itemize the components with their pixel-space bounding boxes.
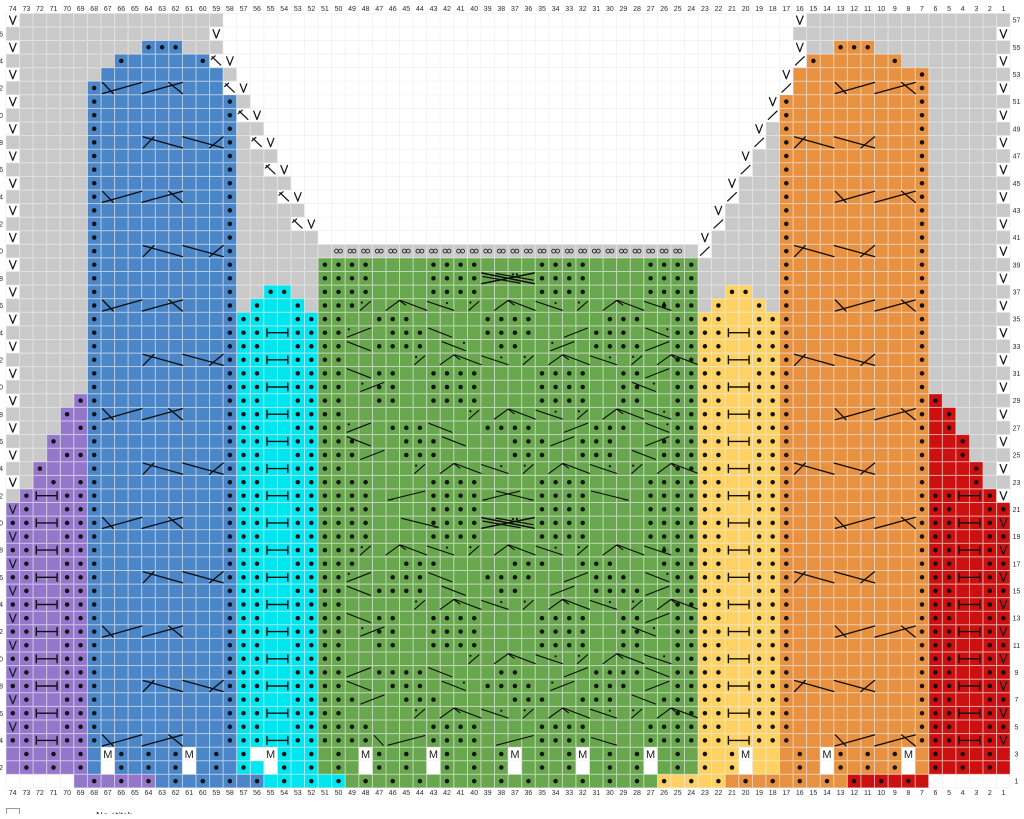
- svg-text:15: 15: [810, 6, 818, 13]
- svg-text:46: 46: [389, 790, 397, 797]
- svg-text:4: 4: [961, 790, 965, 797]
- svg-text:37: 37: [1013, 290, 1021, 297]
- svg-text:23: 23: [701, 790, 709, 797]
- svg-text:27: 27: [647, 6, 655, 13]
- svg-text:2: 2: [988, 6, 992, 13]
- svg-text:53: 53: [294, 6, 302, 13]
- svg-text:68: 68: [90, 790, 98, 797]
- svg-text:8: 8: [0, 684, 3, 691]
- svg-text:51: 51: [321, 790, 329, 797]
- svg-text:28: 28: [633, 790, 641, 797]
- svg-text:48: 48: [0, 140, 3, 147]
- svg-text:No stitch: No stitch: [96, 811, 133, 815]
- svg-text:44: 44: [0, 194, 3, 201]
- svg-text:69: 69: [77, 6, 85, 13]
- svg-text:12: 12: [850, 790, 858, 797]
- svg-text:1: 1: [1015, 779, 1019, 786]
- svg-text:12: 12: [850, 6, 858, 13]
- svg-text:26: 26: [0, 439, 3, 446]
- svg-text:17: 17: [1013, 561, 1021, 568]
- svg-text:9: 9: [1015, 670, 1019, 677]
- svg-text:15: 15: [810, 790, 818, 797]
- svg-text:25: 25: [674, 790, 682, 797]
- svg-text:6: 6: [0, 711, 3, 718]
- svg-text:M: M: [361, 749, 370, 761]
- svg-text:33: 33: [565, 6, 573, 13]
- svg-text:47: 47: [1013, 154, 1021, 161]
- svg-text:41: 41: [1013, 235, 1021, 242]
- svg-text:21: 21: [728, 6, 736, 13]
- svg-text:40: 40: [470, 790, 478, 797]
- svg-text:62: 62: [172, 6, 180, 13]
- svg-text:22: 22: [715, 790, 723, 797]
- svg-text:51: 51: [1013, 99, 1021, 106]
- svg-text:32: 32: [579, 790, 587, 797]
- svg-text:45: 45: [402, 790, 410, 797]
- svg-text:71: 71: [50, 790, 58, 797]
- svg-text:58: 58: [226, 790, 234, 797]
- svg-text:34: 34: [552, 6, 560, 13]
- svg-text:55: 55: [267, 790, 275, 797]
- svg-text:M: M: [741, 749, 750, 761]
- svg-text:50: 50: [335, 6, 343, 13]
- svg-text:56: 56: [0, 31, 3, 38]
- svg-text:10: 10: [877, 6, 885, 13]
- svg-text:M: M: [266, 749, 275, 761]
- svg-text:30: 30: [0, 385, 3, 392]
- svg-text:63: 63: [158, 790, 166, 797]
- svg-text:32: 32: [579, 6, 587, 13]
- svg-text:65: 65: [131, 6, 139, 13]
- svg-text:56: 56: [253, 790, 261, 797]
- svg-text:35: 35: [538, 790, 546, 797]
- svg-text:13: 13: [837, 790, 845, 797]
- svg-text:24: 24: [687, 790, 695, 797]
- svg-text:42: 42: [443, 6, 451, 13]
- svg-text:57: 57: [240, 790, 248, 797]
- svg-text:72: 72: [36, 790, 44, 797]
- svg-text:27: 27: [1013, 425, 1021, 432]
- svg-text:40: 40: [470, 6, 478, 13]
- svg-text:32: 32: [0, 357, 3, 364]
- svg-text:59: 59: [212, 790, 220, 797]
- svg-text:36: 36: [0, 303, 3, 310]
- svg-text:M: M: [822, 749, 831, 761]
- svg-text:65: 65: [131, 790, 139, 797]
- svg-text:19: 19: [755, 6, 763, 13]
- svg-text:M: M: [646, 749, 655, 761]
- svg-text:30: 30: [606, 6, 614, 13]
- svg-text:6: 6: [934, 6, 938, 13]
- svg-text:34: 34: [0, 330, 3, 337]
- svg-text:M: M: [578, 749, 587, 761]
- svg-text:55: 55: [1013, 45, 1021, 52]
- svg-text:28: 28: [0, 412, 3, 419]
- svg-text:66: 66: [117, 790, 125, 797]
- svg-text:20: 20: [742, 790, 750, 797]
- svg-text:52: 52: [307, 6, 315, 13]
- svg-text:37: 37: [511, 6, 519, 13]
- svg-text:49: 49: [348, 6, 356, 13]
- svg-text:50: 50: [0, 113, 3, 120]
- svg-text:47: 47: [375, 790, 383, 797]
- svg-text:43: 43: [430, 6, 438, 13]
- svg-text:34: 34: [552, 790, 560, 797]
- svg-text:4: 4: [0, 738, 3, 745]
- svg-text:44: 44: [416, 790, 424, 797]
- svg-text:36: 36: [525, 790, 533, 797]
- svg-text:8: 8: [906, 6, 910, 13]
- svg-text:39: 39: [484, 790, 492, 797]
- svg-text:23: 23: [701, 6, 709, 13]
- svg-text:43: 43: [1013, 208, 1021, 215]
- svg-text:42: 42: [0, 222, 3, 229]
- svg-text:33: 33: [565, 790, 573, 797]
- svg-text:39: 39: [484, 6, 492, 13]
- svg-text:15: 15: [1013, 589, 1021, 596]
- svg-text:49: 49: [348, 790, 356, 797]
- svg-text:29: 29: [1013, 398, 1021, 405]
- svg-text:29: 29: [620, 790, 628, 797]
- svg-text:73: 73: [23, 6, 31, 13]
- svg-text:39: 39: [1013, 262, 1021, 269]
- svg-text:11: 11: [864, 790, 871, 797]
- svg-text:M: M: [429, 749, 438, 761]
- svg-text:29: 29: [620, 6, 628, 13]
- svg-text:33: 33: [1013, 344, 1021, 351]
- svg-text:2: 2: [988, 790, 992, 797]
- svg-text:31: 31: [1013, 371, 1021, 378]
- svg-text:70: 70: [63, 6, 71, 13]
- svg-text:26: 26: [660, 790, 668, 797]
- svg-text:57: 57: [240, 6, 248, 13]
- svg-text:55: 55: [267, 6, 275, 13]
- svg-text:25: 25: [1013, 453, 1021, 460]
- svg-text:50: 50: [335, 790, 343, 797]
- svg-text:M: M: [103, 749, 112, 761]
- svg-text:6: 6: [934, 790, 938, 797]
- svg-text:19: 19: [755, 790, 763, 797]
- svg-text:14: 14: [0, 602, 3, 609]
- svg-text:26: 26: [660, 6, 668, 13]
- svg-text:11: 11: [864, 6, 871, 13]
- svg-text:1: 1: [1001, 6, 1005, 13]
- svg-text:10: 10: [0, 656, 3, 663]
- svg-text:45: 45: [1013, 181, 1021, 188]
- svg-text:13: 13: [1013, 616, 1021, 623]
- svg-text:48: 48: [362, 790, 370, 797]
- svg-text:18: 18: [769, 790, 777, 797]
- svg-text:54: 54: [280, 790, 288, 797]
- svg-text:56: 56: [253, 6, 261, 13]
- svg-text:48: 48: [362, 6, 370, 13]
- svg-text:64: 64: [145, 6, 153, 13]
- svg-text:36: 36: [525, 6, 533, 13]
- svg-text:16: 16: [796, 790, 804, 797]
- svg-text:38: 38: [497, 6, 505, 13]
- svg-text:70: 70: [63, 790, 71, 797]
- svg-text:1: 1: [1001, 790, 1005, 797]
- svg-text:73: 73: [23, 790, 31, 797]
- svg-text:54: 54: [280, 6, 288, 13]
- svg-text:10: 10: [877, 790, 885, 797]
- svg-text:24: 24: [0, 466, 3, 473]
- svg-text:64: 64: [145, 790, 153, 797]
- svg-text:24: 24: [687, 6, 695, 13]
- svg-text:31: 31: [592, 6, 600, 13]
- svg-text:9: 9: [893, 790, 897, 797]
- svg-text:58: 58: [226, 6, 234, 13]
- svg-text:38: 38: [0, 276, 3, 283]
- svg-text:4: 4: [961, 6, 965, 13]
- svg-text:3: 3: [1015, 752, 1019, 759]
- svg-text:31: 31: [592, 790, 600, 797]
- svg-text:M: M: [185, 749, 194, 761]
- svg-text:51: 51: [321, 6, 329, 13]
- svg-text:25: 25: [674, 6, 682, 13]
- svg-text:46: 46: [0, 167, 3, 174]
- svg-text:53: 53: [1013, 72, 1021, 79]
- svg-text:8: 8: [906, 790, 910, 797]
- svg-text:46: 46: [389, 6, 397, 13]
- svg-text:18: 18: [769, 6, 777, 13]
- svg-text:5: 5: [947, 6, 951, 13]
- svg-text:63: 63: [158, 6, 166, 13]
- svg-text:21: 21: [1013, 507, 1021, 514]
- svg-text:60: 60: [199, 790, 207, 797]
- svg-text:30: 30: [606, 790, 614, 797]
- svg-text:61: 61: [185, 790, 193, 797]
- svg-text:5: 5: [1015, 724, 1019, 731]
- svg-text:62: 62: [172, 790, 180, 797]
- svg-text:67: 67: [104, 790, 112, 797]
- svg-text:16: 16: [0, 575, 3, 582]
- svg-text:67: 67: [104, 6, 112, 13]
- svg-text:19: 19: [1013, 534, 1021, 541]
- svg-text:18: 18: [0, 548, 3, 555]
- svg-text:44: 44: [416, 6, 424, 13]
- svg-text:M: M: [904, 749, 913, 761]
- svg-text:68: 68: [90, 6, 98, 13]
- svg-text:43: 43: [430, 790, 438, 797]
- svg-text:52: 52: [307, 790, 315, 797]
- svg-text:42: 42: [443, 790, 451, 797]
- svg-text:38: 38: [497, 790, 505, 797]
- svg-text:7: 7: [1015, 697, 1019, 704]
- svg-text:5: 5: [947, 790, 951, 797]
- svg-text:17: 17: [782, 6, 790, 13]
- svg-text:45: 45: [402, 6, 410, 13]
- svg-text:27: 27: [647, 790, 655, 797]
- svg-text:53: 53: [294, 790, 302, 797]
- svg-text:2: 2: [0, 765, 3, 772]
- svg-text:16: 16: [796, 6, 804, 13]
- svg-text:35: 35: [538, 6, 546, 13]
- svg-text:28: 28: [633, 6, 641, 13]
- svg-text:72: 72: [36, 6, 44, 13]
- svg-text:41: 41: [457, 6, 465, 13]
- svg-text:12: 12: [0, 629, 3, 636]
- svg-text:3: 3: [974, 6, 978, 13]
- svg-text:57: 57: [1013, 18, 1021, 25]
- svg-text:54: 54: [0, 59, 3, 66]
- svg-text:9: 9: [893, 6, 897, 13]
- svg-text:69: 69: [77, 790, 85, 797]
- svg-text:49: 49: [1013, 126, 1021, 133]
- svg-text:52: 52: [0, 86, 3, 93]
- svg-text:66: 66: [117, 6, 125, 13]
- svg-text:60: 60: [199, 6, 207, 13]
- svg-text:3: 3: [974, 790, 978, 797]
- svg-text:59: 59: [212, 6, 220, 13]
- svg-text:13: 13: [837, 6, 845, 13]
- svg-text:37: 37: [511, 790, 519, 797]
- svg-text:17: 17: [782, 790, 790, 797]
- svg-text:22: 22: [0, 493, 3, 500]
- svg-text:23: 23: [1013, 480, 1021, 487]
- svg-text:21: 21: [728, 790, 736, 797]
- svg-text:74: 74: [9, 790, 17, 797]
- svg-text:61: 61: [185, 6, 193, 13]
- svg-text:7: 7: [920, 6, 924, 13]
- svg-text:74: 74: [9, 6, 17, 13]
- svg-text:M: M: [510, 749, 519, 761]
- svg-text:11: 11: [1013, 643, 1020, 650]
- svg-text:7: 7: [920, 790, 924, 797]
- svg-text:20: 20: [0, 521, 3, 528]
- svg-text:41: 41: [457, 790, 465, 797]
- svg-text:14: 14: [823, 6, 831, 13]
- svg-text:14: 14: [823, 790, 831, 797]
- svg-text:47: 47: [375, 6, 383, 13]
- svg-text:71: 71: [50, 6, 58, 13]
- svg-text:35: 35: [1013, 317, 1021, 324]
- svg-text:20: 20: [742, 6, 750, 13]
- svg-text:40: 40: [0, 249, 3, 256]
- svg-text:22: 22: [715, 6, 723, 13]
